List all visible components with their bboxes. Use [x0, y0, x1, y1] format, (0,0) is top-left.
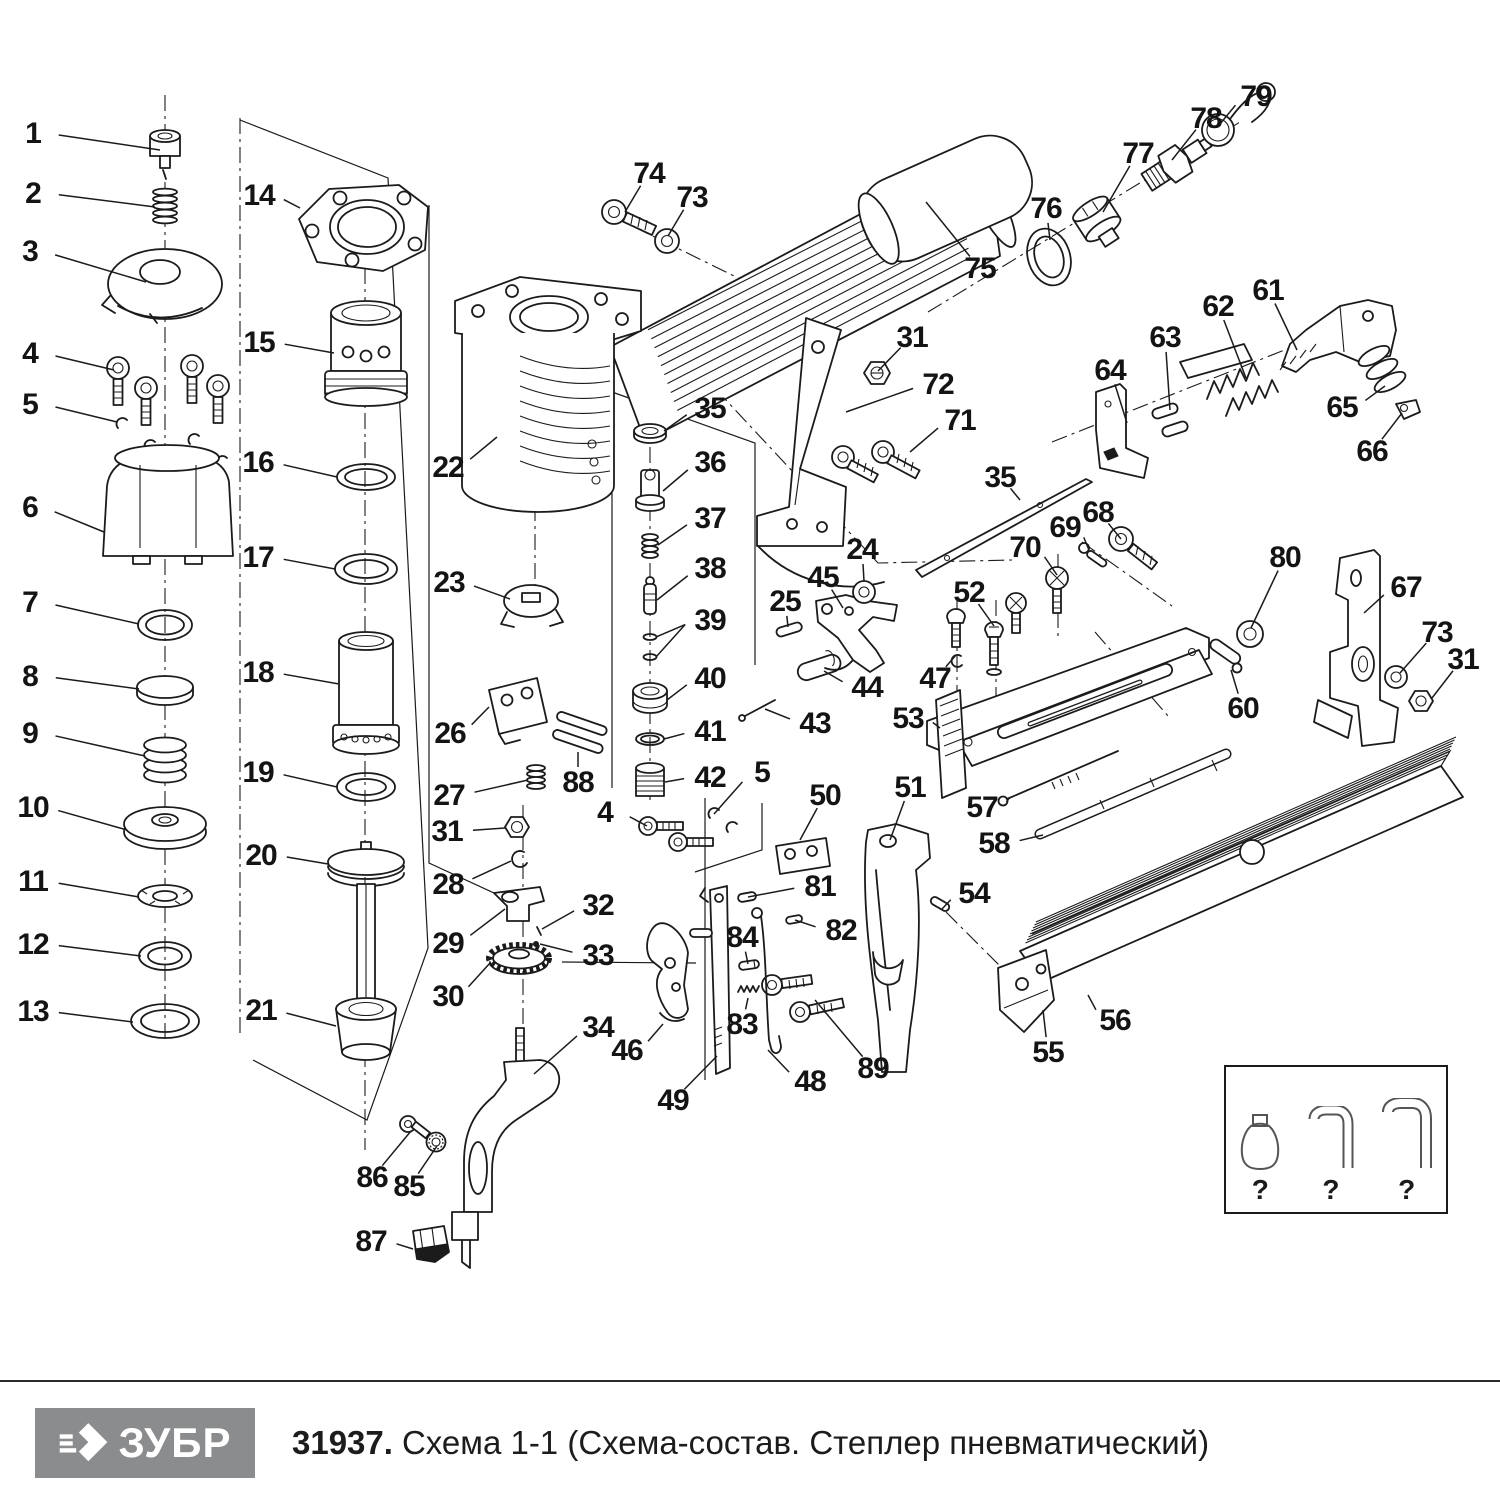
leader-line [397, 1244, 413, 1249]
part-label: 72 [922, 368, 954, 401]
part-13-o-ring [131, 1004, 199, 1038]
leader-line [284, 674, 339, 684]
part-30-gear [490, 946, 548, 974]
part-label: 64 [1094, 354, 1127, 387]
part-86-screw [400, 1116, 430, 1138]
part-label: 87 [355, 1225, 387, 1258]
part-label: 10 [17, 791, 49, 824]
part-label: 81 [804, 870, 836, 903]
leader-line [1231, 670, 1238, 694]
accessory-oil: ? [1239, 1112, 1281, 1204]
leader-line [284, 465, 337, 477]
part-60-pin [1208, 637, 1242, 672]
part-label: 75 [964, 252, 996, 285]
hatch-line [1035, 740, 1455, 925]
part-label: 84 [726, 921, 759, 954]
part-label: 47 [919, 662, 951, 695]
leader-line [795, 920, 816, 927]
part-label: 65 [1326, 391, 1358, 424]
part-label: 23 [433, 566, 465, 599]
part-31-nut-a [505, 817, 529, 837]
leader-line [667, 685, 687, 700]
leader-line [664, 734, 684, 739]
part-label: 45 [807, 561, 839, 594]
leader-line [59, 883, 139, 897]
part-label: 35 [694, 392, 726, 425]
part-label: 73 [676, 181, 708, 214]
part-40-bushing [633, 683, 667, 713]
part-label: 29 [432, 927, 464, 960]
part-6-cap-housing [103, 445, 233, 564]
part-label: 15 [243, 326, 275, 359]
part-label: 27 [433, 779, 465, 812]
leader-line [1103, 166, 1130, 212]
leader-line [55, 407, 117, 422]
part-label: 60 [1227, 692, 1259, 725]
part-14-gasket-plate [299, 185, 428, 271]
part-label: 88 [562, 766, 594, 799]
part-87-knob [413, 1226, 449, 1262]
part-label: 37 [694, 502, 726, 535]
part-9-ring-stack [144, 738, 186, 783]
part-label: 69 [1049, 511, 1081, 544]
hatch-line [1027, 755, 1447, 940]
part-55-foot [998, 950, 1054, 1032]
part-label: 58 [978, 827, 1010, 860]
part-50-block [776, 838, 830, 874]
part-73-washer-a [655, 229, 679, 253]
part-19-o-ring [337, 773, 395, 801]
accessory-hex-key-1: ? [1308, 1106, 1354, 1204]
leader-line [648, 1024, 663, 1041]
part-label: 50 [809, 779, 841, 812]
leader-line [474, 586, 510, 599]
part-label: 46 [611, 1034, 643, 1067]
part-58-rod [1040, 754, 1226, 834]
part-label: 31 [431, 815, 463, 848]
part-88-pins [552, 711, 608, 754]
leader-line [285, 344, 334, 353]
part-label: 19 [242, 756, 274, 789]
part-34-crank-arm [452, 1028, 559, 1268]
part-label: 28 [432, 868, 464, 901]
leader-line [1088, 995, 1096, 1010]
part-84-pin [739, 960, 760, 971]
part-label: 24 [846, 533, 879, 566]
leader-line [542, 911, 574, 929]
part-label: 54 [958, 877, 991, 910]
brand-name: ЗУБР [118, 1422, 231, 1464]
part-89-screws [762, 975, 844, 1022]
part-label: 44 [851, 671, 884, 704]
leader-line [657, 576, 688, 600]
part-label: 35 [984, 461, 1016, 494]
part-label: 55 [1032, 1036, 1064, 1069]
part-4-screws-lower [639, 817, 713, 851]
leader-line [470, 909, 505, 935]
part-label: 9 [22, 717, 38, 750]
leader-line [472, 707, 489, 725]
part-label: 63 [1149, 321, 1181, 354]
leader-line [286, 1013, 336, 1026]
part-10-piston-disc [124, 807, 206, 849]
leader-line [55, 356, 114, 370]
part-label: 67 [1390, 571, 1422, 604]
part-label: 76 [1030, 192, 1062, 225]
hatch-line [1026, 758, 1446, 943]
leader-line [58, 811, 127, 830]
leader-line [910, 428, 938, 452]
part-label: 61 [1252, 274, 1284, 307]
hex-key-icon [1308, 1106, 1354, 1172]
part-label: 5 [754, 756, 770, 789]
part-4-screws [107, 355, 229, 425]
part-label: 12 [17, 928, 49, 961]
part-label: 21 [245, 994, 277, 1027]
part-label: 62 [1202, 290, 1234, 323]
brand-logo: ЗУБР [35, 1408, 255, 1478]
part-label: 56 [1099, 1004, 1131, 1037]
part-label: 53 [892, 702, 924, 735]
leader-line [663, 470, 688, 491]
part-label: 32 [582, 889, 614, 922]
part-27-spring [527, 765, 545, 789]
leader-line [59, 1013, 133, 1022]
part-69-pin [1079, 543, 1108, 568]
part-64-plate [1096, 384, 1148, 478]
part-16-o-ring [337, 464, 395, 490]
part-label: 71 [944, 404, 976, 437]
leader-line [284, 775, 337, 787]
part-label: 49 [657, 1084, 689, 1117]
part-57-rod [999, 751, 1119, 806]
leader-line [55, 605, 139, 624]
part-83-spring [738, 986, 759, 992]
part-32-pin [537, 927, 541, 935]
leader-line [656, 625, 685, 657]
leader-line [55, 736, 145, 756]
leader-line [287, 857, 328, 864]
part-label: 17 [242, 541, 274, 574]
part-label: 48 [794, 1065, 826, 1098]
part-51-frame [865, 824, 930, 1072]
part-label: 4 [597, 796, 614, 829]
leader-line [1166, 352, 1170, 410]
zubr-arrow-icon [58, 1417, 110, 1469]
part-label: 33 [582, 939, 614, 972]
leader-line [472, 861, 511, 879]
part-label: 68 [1082, 496, 1114, 529]
part-15-bushing [325, 301, 407, 406]
part-21-cup [336, 998, 396, 1060]
part-label: 8 [22, 660, 38, 693]
part-20-piston-blade [328, 842, 404, 1000]
part-label: 42 [694, 761, 726, 794]
oil-bottle-icon [1239, 1112, 1281, 1172]
hatch-line [1036, 737, 1456, 922]
part-label: 30 [432, 980, 464, 1013]
part-label: 80 [1269, 541, 1301, 574]
drawing-caption: Схема 1-1 (Схема-состав. Степлер пневмат… [402, 1424, 1209, 1461]
part-label: 36 [694, 446, 726, 479]
part-label: 38 [694, 552, 726, 585]
part-label: 31 [896, 321, 928, 354]
part-28-c-clip [512, 851, 527, 867]
part-29-bracket [494, 887, 544, 921]
part-82-pin [786, 915, 803, 925]
part-label: 52 [953, 576, 985, 609]
part-label: 73 [1421, 616, 1453, 649]
part-35-washer [634, 424, 666, 443]
part-46-trigger [647, 923, 712, 1021]
page: 1234567891011121314151617181920212223242… [0, 0, 1500, 1500]
part-label: 6 [22, 491, 38, 524]
hatch-line [1033, 743, 1453, 928]
part-label: 86 [356, 1161, 388, 1194]
part-52-screws [985, 593, 1026, 675]
part-label: 7 [22, 586, 38, 619]
accessory-label: ? [1322, 1176, 1339, 1204]
part-8-disc [137, 676, 193, 705]
part-17-o-ring [335, 554, 397, 584]
leader-line [1043, 1010, 1046, 1037]
leader-line [665, 779, 684, 782]
hatch-line [1030, 749, 1450, 934]
part-label: 39 [694, 604, 726, 637]
part-80-washer [1237, 621, 1263, 647]
part-label: 89 [857, 1052, 889, 1085]
part-label: 20 [245, 839, 277, 872]
part-47-screw [947, 609, 965, 667]
part-label: 3 [22, 235, 38, 268]
part-label: 77 [1122, 137, 1154, 170]
leader-line [656, 625, 685, 637]
part-71-screws [832, 441, 920, 482]
part-label: 79 [1240, 80, 1272, 113]
part-label: 5 [22, 388, 38, 421]
leader-line [59, 946, 141, 956]
part-31-nut-c [1409, 691, 1433, 711]
part-label: 40 [694, 662, 726, 695]
drawing-number: 31937. [292, 1424, 393, 1461]
accessory-hex-key-2: ? [1381, 1098, 1433, 1204]
leader-line [59, 195, 155, 207]
part-label: 70 [1009, 531, 1041, 564]
part-36-valve-stem [636, 470, 664, 511]
part-56-rail [1020, 737, 1463, 982]
part-label: 2 [25, 177, 41, 210]
part-label: 14 [243, 179, 276, 212]
part-1-valve-cap [150, 130, 180, 179]
part-label: 41 [694, 715, 726, 748]
leader-line [56, 678, 139, 689]
leader-line [1275, 304, 1297, 350]
accessories-box: ? ? ? [1224, 1065, 1448, 1214]
leader-line [863, 564, 864, 581]
part-label: 34 [582, 1011, 615, 1044]
hex-key-icon [1381, 1098, 1433, 1172]
part-label: 13 [17, 995, 49, 1028]
part-25-pin [775, 621, 802, 637]
part-37-spring [642, 534, 658, 558]
part-3-cover [102, 249, 222, 323]
leader-line [473, 828, 505, 830]
part-label: 26 [434, 717, 466, 750]
part-label: 1 [25, 117, 41, 150]
part-label: 51 [894, 771, 926, 804]
part-77-fitting [1070, 192, 1129, 253]
leader-line [765, 709, 790, 719]
part-label: 78 [1190, 102, 1222, 135]
part-label: 16 [242, 446, 274, 479]
part-26-bracket [489, 678, 547, 744]
part-67-bracket [1314, 550, 1398, 746]
leader-line [468, 963, 490, 987]
part-24-washer [853, 581, 875, 603]
accessory-label: ? [1398, 1176, 1415, 1204]
part-2-spring [153, 189, 177, 224]
leader-line [59, 135, 160, 150]
leader-line [800, 808, 817, 840]
leader-line [284, 200, 300, 208]
part-23-cap-nut [501, 585, 563, 627]
part-18-cylinder [333, 632, 399, 754]
leader-line [768, 1050, 789, 1072]
part-label: 4 [22, 337, 39, 370]
part-label: 74 [633, 157, 666, 190]
part-label: 18 [242, 656, 274, 689]
part-11-ring [138, 885, 192, 907]
leader-line [475, 780, 528, 792]
part-5-clips-lower [708, 808, 737, 832]
leader-line [684, 1056, 717, 1089]
part-81-pin [737, 891, 756, 902]
leader-line [284, 559, 335, 569]
leader-line [658, 525, 687, 545]
hatch-line [1029, 752, 1449, 937]
part-label: 43 [799, 707, 831, 740]
part-31-nut-b [864, 362, 890, 384]
part-label: 22 [432, 451, 464, 484]
footer-divider [0, 1380, 1500, 1382]
part-label: 85 [393, 1170, 425, 1203]
part-label: 83 [726, 1008, 758, 1041]
hatch-line [1032, 746, 1452, 931]
part-38-pin [644, 577, 656, 614]
part-42-plug [636, 763, 664, 796]
part-label: 25 [769, 585, 801, 618]
part-label: 11 [18, 865, 48, 898]
leader-line [846, 388, 913, 412]
leader-line [1251, 571, 1278, 628]
part-label: 66 [1356, 435, 1388, 468]
part-label: 57 [966, 791, 998, 824]
drawing-title: 31937.Схема 1-1 (Схема-состав. Степлер п… [292, 1424, 1209, 1462]
accessory-label: ? [1252, 1176, 1269, 1204]
leader-line [55, 512, 104, 532]
part-label: 82 [825, 914, 857, 947]
